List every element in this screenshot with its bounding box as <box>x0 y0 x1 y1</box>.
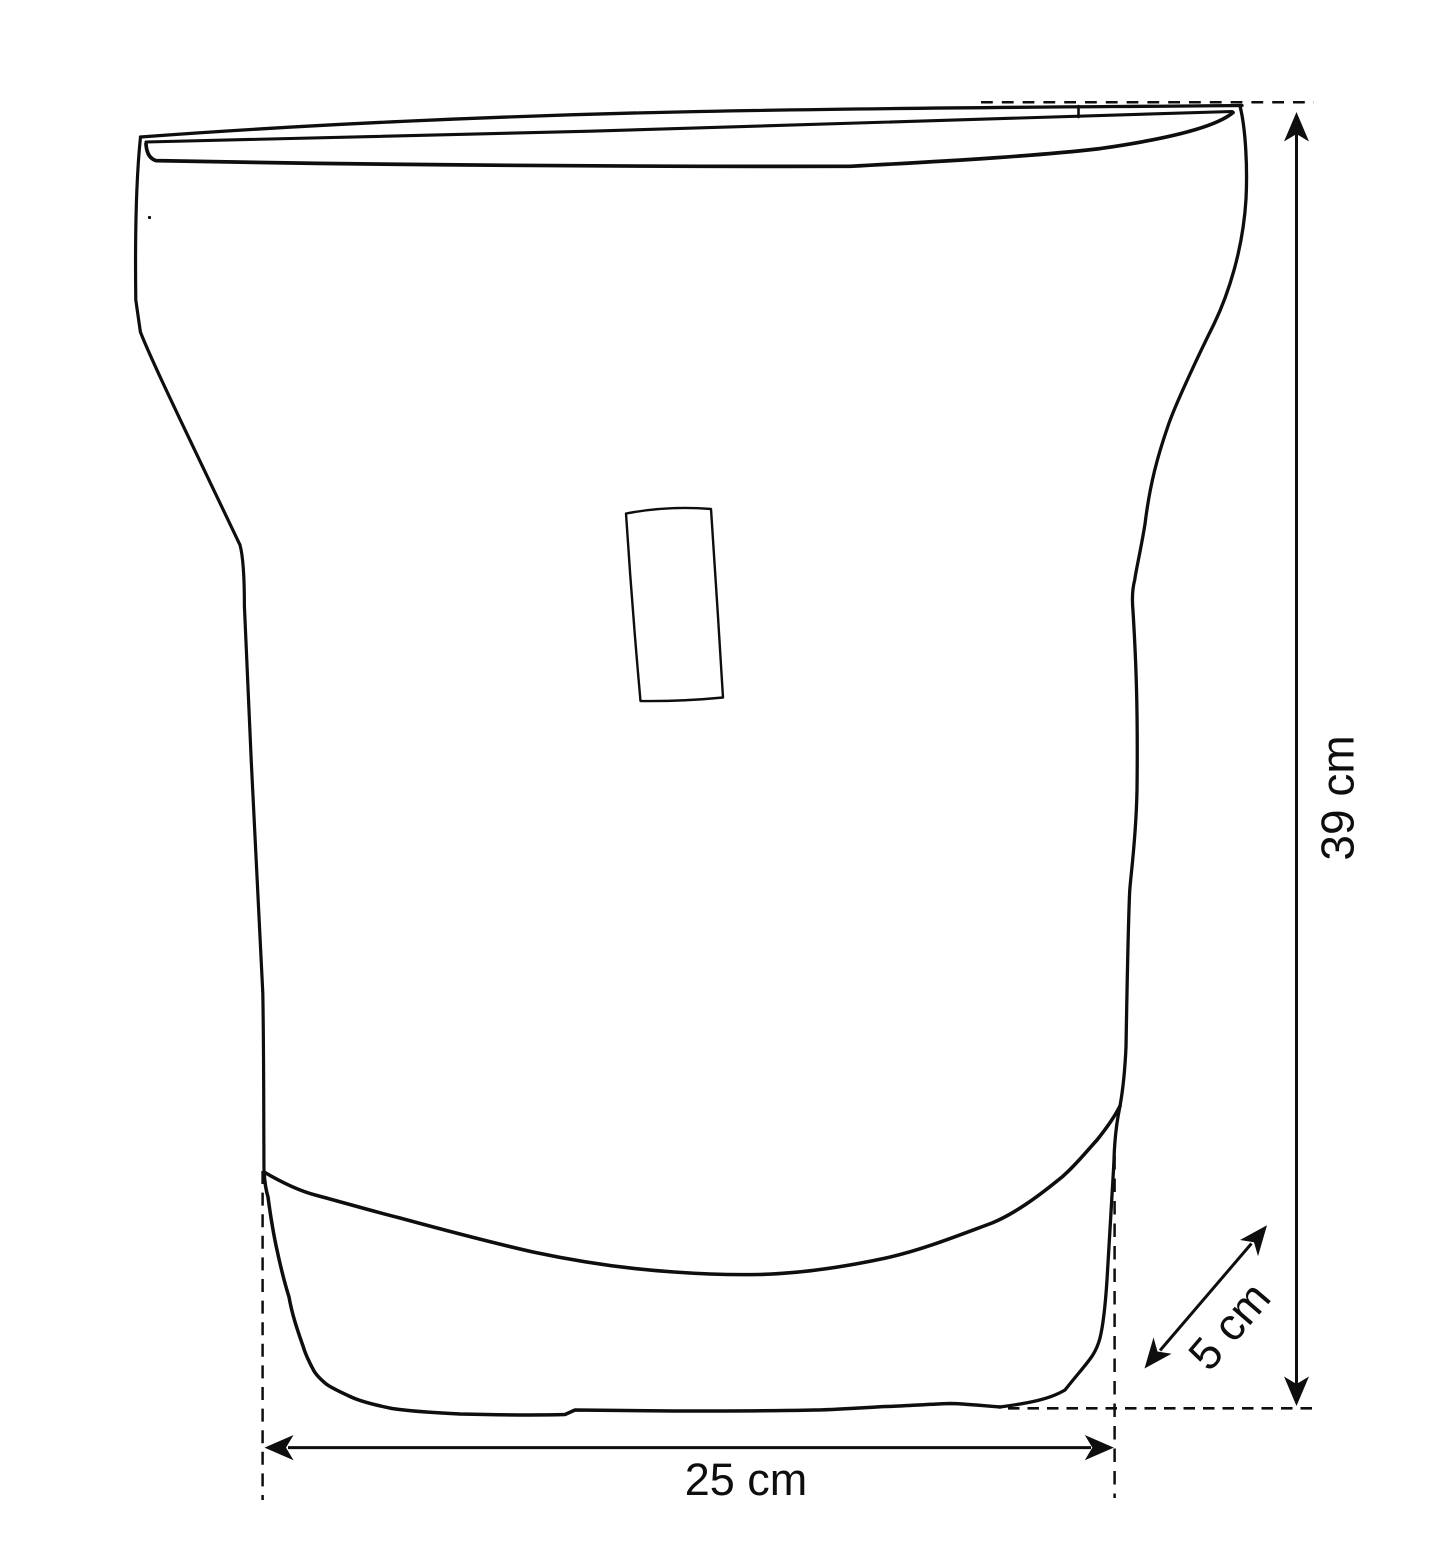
svg-text:5 cm: 5 cm <box>1178 1272 1280 1379</box>
svg-text:25 cm: 25 cm <box>685 1454 808 1505</box>
svg-text:39 cm: 39 cm <box>1312 735 1364 860</box>
